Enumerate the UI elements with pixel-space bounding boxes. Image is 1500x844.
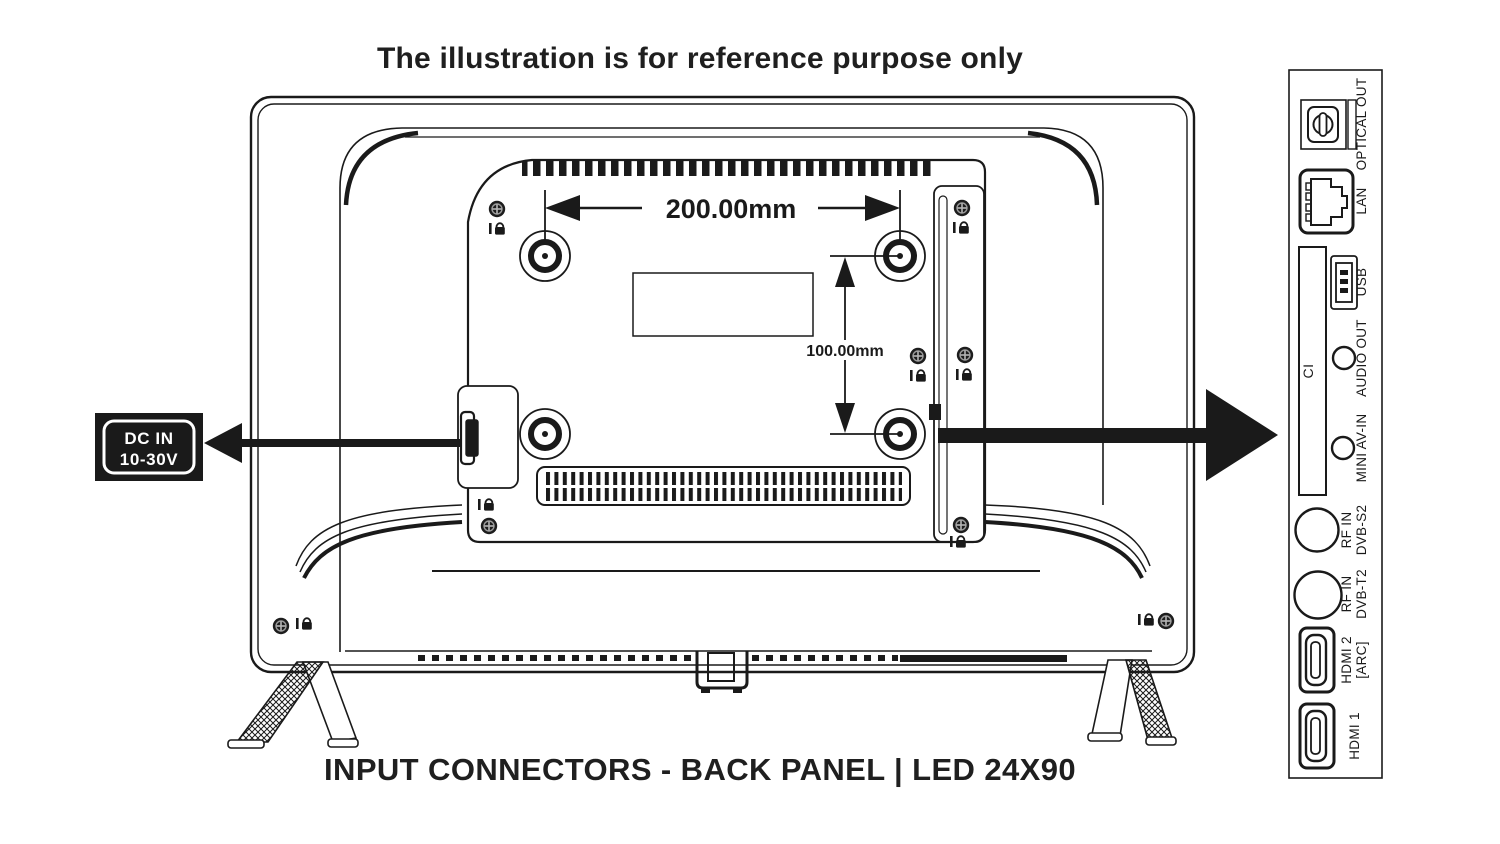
screw [1158,613,1174,629]
dc-in-label-line2: 10-30V [120,450,178,469]
rf-in-dvb-t2-label-line2: DVB-T2 [1354,569,1369,619]
screw [954,200,970,216]
hdmi-2-label-line1: HDMI 2 [1339,636,1354,684]
screw [910,348,926,364]
dimension-100mm-label: 100.00mm [806,343,883,360]
optical-out-label: OPTICAL OUT [1354,78,1369,171]
screw [489,201,505,217]
lock-icon [956,369,972,381]
screw [953,517,969,533]
hdmi-2-label-line2: [ARC] [1354,641,1369,679]
usb-label: USB [1354,268,1369,297]
left-stand [228,662,358,748]
dc-in-label-line1: DC IN [124,429,173,448]
diagram-caption: INPUT CONNECTORS - BACK PANEL | LED 24X9… [250,752,1150,788]
lock-icon [296,618,312,630]
screw [481,518,497,534]
rf-in-dvb-t2-label-line1: RF IN [1339,576,1354,613]
top-vent-strip [522,161,933,176]
dc-jack-recess [458,386,518,488]
lock-icon [478,499,494,511]
dc-in-arrowhead [204,423,242,463]
rf-in-dvb-s2-label-line1: RF IN [1339,512,1354,549]
hdmi-1-label: HDMI 1 [1347,712,1362,760]
screw [273,618,289,634]
manual-page: The illustration is for reference purpos… [0,0,1500,844]
connector-panel: OPTICAL OUT LAN CI USB [1289,70,1382,778]
back-panel-diagram: 200.00mm 100.00mm [0,0,1500,844]
dc-in-label: DC IN 10-30V [95,413,203,481]
lock-icon [1138,614,1154,626]
lock-icon [489,223,505,235]
lock-icon [950,536,966,548]
audio-out-label: AUDIO OUT [1354,319,1369,397]
dimension-200mm-label: 200.00mm [666,194,797,224]
rf-in-dvb-s2-label-line2: DVB-S2 [1354,505,1369,556]
vesa-hole-bottom-left [520,409,570,459]
mini-av-in-label: MINI AV-IN [1354,414,1369,483]
lan-label: LAN [1354,187,1369,214]
screw [957,347,973,363]
lock-icon [953,222,969,234]
lock-icon [910,370,926,382]
ci-label: CI [1300,364,1316,379]
